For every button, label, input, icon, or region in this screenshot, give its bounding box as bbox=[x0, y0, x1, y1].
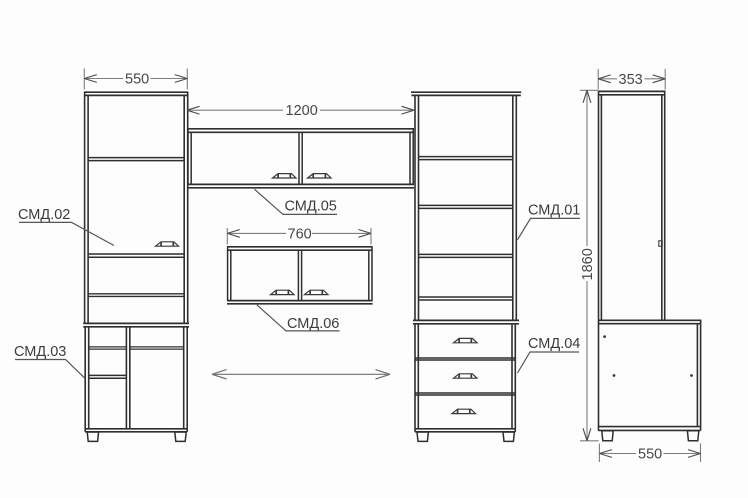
svg-text:СМД.06: СМД.06 bbox=[287, 316, 339, 332]
svg-text:1200: 1200 bbox=[286, 103, 318, 119]
svg-text:550: 550 bbox=[638, 447, 662, 463]
svg-text:СМД.02: СМД.02 bbox=[18, 207, 70, 223]
svg-text:СМД.05: СМД.05 bbox=[285, 199, 337, 215]
svg-text:1860: 1860 bbox=[580, 248, 596, 280]
svg-text:550: 550 bbox=[125, 72, 149, 88]
svg-text:353: 353 bbox=[619, 72, 643, 88]
svg-text:СМД.01: СМД.01 bbox=[528, 203, 580, 219]
svg-text:СМД.04: СМД.04 bbox=[528, 336, 580, 352]
svg-text:СМД.03: СМД.03 bbox=[14, 344, 66, 360]
svg-text:760: 760 bbox=[288, 226, 312, 242]
